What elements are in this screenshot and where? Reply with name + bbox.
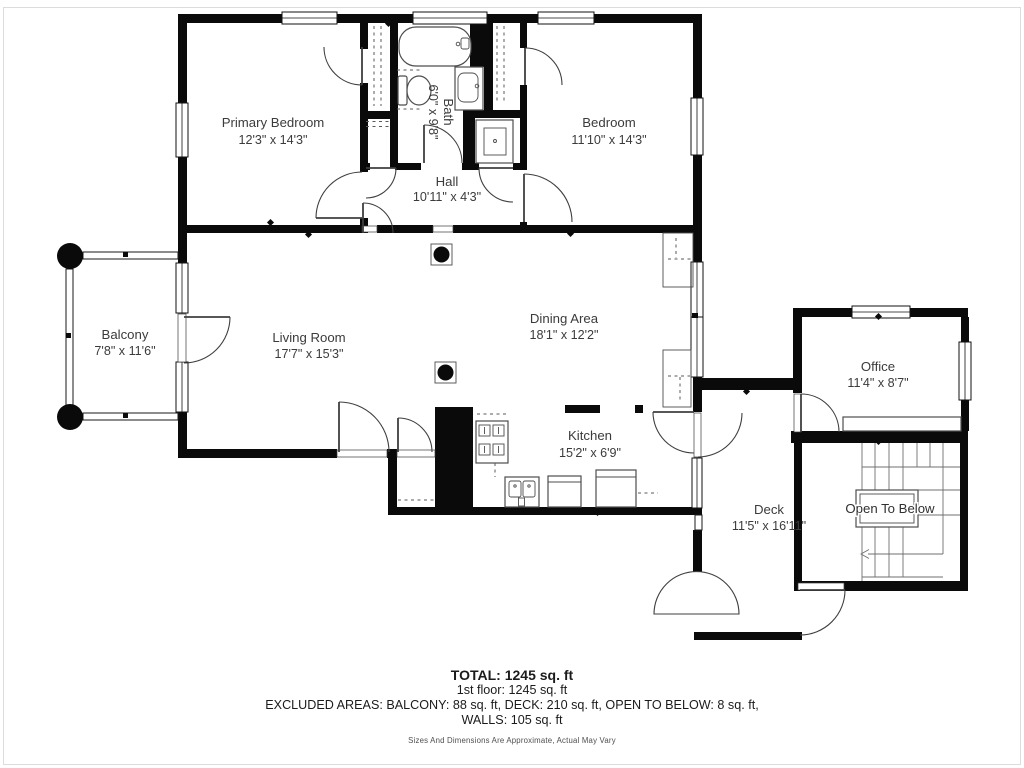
window [538,12,594,24]
door-deck-corner [654,572,739,614]
primary-bedroom-dims: 12'3" x 14'3" [238,133,307,147]
walls [178,14,969,640]
kitchen-sink-icon [505,477,539,507]
excluded-areas: EXCLUDED AREAS: BALCONY: 88 sq. ft, DECK… [0,698,1024,713]
door-office [801,394,839,432]
window [959,342,971,400]
window [692,458,702,508]
window [282,12,337,24]
window [176,263,188,313]
bath-fixtures [397,27,513,163]
desk [843,417,961,431]
support-columns [431,244,456,383]
dining-area-dims: 18'1" x 12'2" [529,328,598,342]
door-primary-bedroom [316,172,362,218]
door-hall-closet [366,168,396,198]
first-floor-area: 1st floor: 1245 sq. ft [0,683,1024,698]
refrigerator-icon [596,470,636,507]
door-entry-closet [398,418,432,452]
support-column-icon [435,362,456,383]
kitchen-label: Kitchen [568,428,612,443]
deck-label: Deck [754,502,784,517]
bathtub-icon [399,27,471,66]
dining-closet [663,350,691,407]
balcony-dims: 7'8" x 11'6" [94,344,155,358]
kitchen-dims: 15'2" x 6'9" [559,446,621,460]
door-balcony [184,317,230,363]
primary-bedroom-label: Primary Bedroom [222,115,325,130]
floorplan-page: Primary Bedroom 12'3" x 14'3" Bedroom 11… [0,0,1024,768]
bath-label: Bath [441,98,456,125]
bath-dims: 6'0" x 9'8" [426,84,440,139]
balcony-post-icon [57,404,83,430]
door-bedroom [524,174,572,222]
window [413,12,487,24]
door-bedroom-closet [525,48,562,85]
bedroom-label: Bedroom [582,115,636,130]
balcony-post-icon [57,243,83,269]
living-room-label: Living Room [272,330,345,345]
dining-area-label: Dining Area [530,311,599,326]
window [691,317,703,377]
walls-area: WALLS: 105 sq. ft [0,713,1024,728]
open-to-below-label: Open To Below [845,501,935,516]
area-summary: TOTAL: 1245 sq. ft 1st floor: 1245 sq. f… [0,667,1024,745]
office-dims: 11'4" x 8'7" [847,376,908,390]
window [176,362,188,412]
sink-vanity-icon [455,67,483,110]
support-column-icon [431,244,452,265]
bath-label-group: Bath 6'0" x 9'8" [426,84,456,139]
door-deck-stairs [800,590,845,635]
door-entry [339,402,389,452]
window [691,98,703,155]
toilet-icon [397,70,431,109]
shower-icon [476,120,513,163]
office-label: Office [861,359,895,374]
living-room-dims: 17'7" x 15'3" [274,347,343,361]
stove-icon [476,421,508,463]
disclaimer: Sizes And Dimensions Are Approximate, Ac… [0,736,1024,745]
hall-label: Hall [436,174,459,189]
floorplan-drawing: Primary Bedroom 12'3" x 14'3" Bedroom 11… [0,0,1024,768]
bedroom-dims: 11'10" x 14'3" [571,133,646,147]
total-area: TOTAL: 1245 sq. ft [0,667,1024,683]
door-primary-bedroom-closet [324,47,362,85]
door-linen-closet [479,168,513,202]
balcony-label: Balcony [102,327,149,342]
stair-direction-arrow-icon [861,550,943,559]
kitchen-fixtures [476,414,658,507]
window [176,103,188,157]
deck-dims: 11'5" x 16'11" [732,519,806,533]
dining-closet [663,233,693,287]
door-openings [178,226,844,590]
hall-dims: 10'11" x 4'3" [413,190,481,204]
dishwasher-icon [548,476,581,507]
